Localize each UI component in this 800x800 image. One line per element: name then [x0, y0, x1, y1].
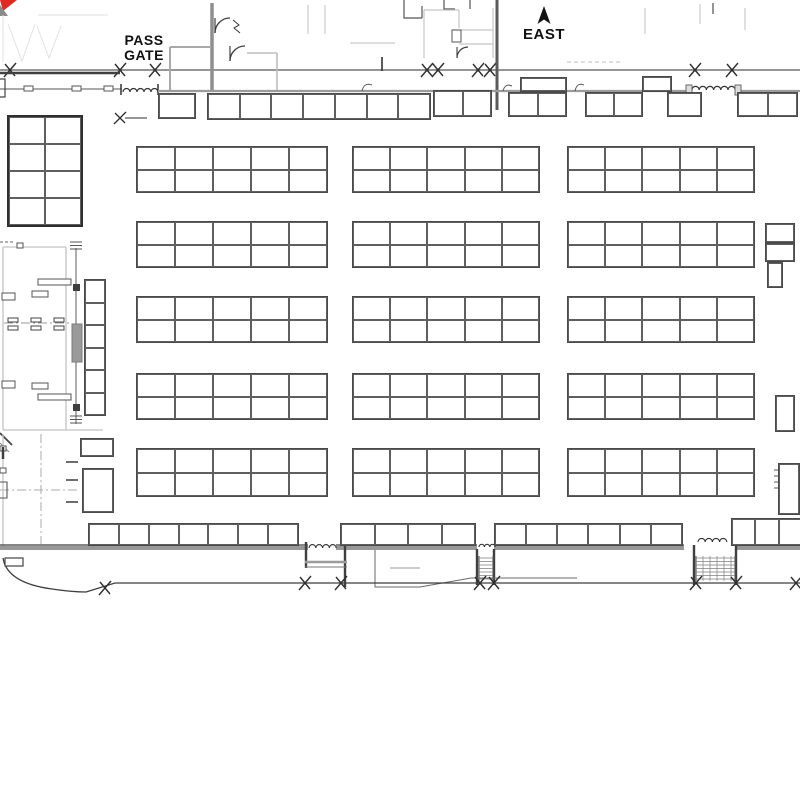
booth-cell: [137, 297, 175, 320]
booth-cell: [137, 320, 175, 343]
pass-gate-line1: PASS: [112, 33, 176, 48]
booth-cell: [390, 449, 427, 473]
booth-cell: [442, 524, 476, 545]
booth-cell: [465, 222, 502, 245]
booth-cell: [289, 449, 327, 473]
booth-cell: [717, 222, 754, 245]
booth-grid: [567, 373, 755, 420]
booth-grid: [80, 438, 114, 457]
booth-cell: [465, 147, 502, 170]
booth-grid: [352, 296, 540, 343]
booth-cell: [149, 524, 179, 545]
booth-cell: [465, 449, 502, 473]
booth-cell: [137, 170, 175, 193]
booth-cell: [586, 93, 614, 116]
booth-cell: [45, 171, 81, 198]
booth-cell: [367, 94, 399, 119]
booth-grid: [84, 279, 106, 416]
booth-cell: [434, 91, 463, 116]
booth-cell: [502, 245, 539, 268]
booth-grid: [642, 76, 672, 92]
booth-cell: [89, 524, 119, 545]
booth-cell: [251, 320, 289, 343]
booth-grid: [765, 223, 795, 243]
booth-cell: [526, 524, 557, 545]
booth-cell: [175, 473, 213, 497]
booth-grid: [352, 146, 540, 193]
booth-grid: [731, 518, 800, 546]
booth-cell: [240, 94, 272, 119]
booth-cell: [289, 297, 327, 320]
booth-cell: [605, 397, 642, 420]
booth-cell: [755, 519, 778, 545]
booth-grid: [765, 243, 795, 262]
booth-cell: [208, 94, 240, 119]
booth-cell: [680, 473, 717, 497]
booth-cell: [680, 374, 717, 397]
booth-grid: [352, 373, 540, 420]
booth-cell: [605, 473, 642, 497]
booth-grid: [567, 448, 755, 497]
booth-cell: [137, 374, 175, 397]
booth-cell: [717, 473, 754, 497]
booth-cell: [85, 348, 105, 371]
booth-cell: [502, 374, 539, 397]
booth-cell: [766, 244, 794, 261]
booth-cell: [238, 524, 268, 545]
booth-cell: [45, 144, 81, 171]
booth-grid: [494, 523, 683, 546]
booth-cell: [680, 147, 717, 170]
booth-cell: [251, 147, 289, 170]
booth-cell: [303, 94, 335, 119]
booth-grid: [567, 221, 755, 268]
booth-cell: [289, 374, 327, 397]
booth-cell: [119, 524, 149, 545]
booth-cell: [521, 78, 566, 91]
booth-cell: [502, 222, 539, 245]
booth-cell: [353, 222, 390, 245]
booth-cell: [766, 224, 794, 242]
booth-cell: [353, 320, 390, 343]
booth-cell: [398, 94, 430, 119]
booth-grid: [767, 262, 783, 288]
booth-cell: [45, 117, 81, 144]
booth-cell: [213, 245, 251, 268]
booth-cell: [251, 245, 289, 268]
booth-grid: [88, 523, 299, 546]
booth-cell: [605, 320, 642, 343]
booth-cell: [289, 147, 327, 170]
booth-cell: [538, 93, 567, 116]
booth-cell: [717, 397, 754, 420]
booth-cell: [509, 93, 538, 116]
booth-cell: [353, 449, 390, 473]
booth-cell: [85, 393, 105, 416]
booth-cell: [289, 170, 327, 193]
booth-cell: [465, 170, 502, 193]
booth-cell: [353, 473, 390, 497]
booth-cell: [465, 374, 502, 397]
booth-cell: [605, 147, 642, 170]
booth-cell: [353, 297, 390, 320]
booth-cell: [353, 147, 390, 170]
booth-cell: [390, 397, 427, 420]
booth-cell: [268, 524, 298, 545]
booth-grid: [520, 77, 567, 92]
booth-cell: [251, 374, 289, 397]
booth-cell: [427, 374, 464, 397]
booth-cell: [717, 245, 754, 268]
booth-cell: [427, 170, 464, 193]
booth-grid: [778, 463, 800, 515]
booth-cell: [353, 397, 390, 420]
booth-cell: [732, 519, 755, 545]
booth-cell: [717, 147, 754, 170]
booth-cell: [213, 170, 251, 193]
booth-cell: [568, 374, 605, 397]
booth-grid: [508, 92, 567, 117]
booth-grid: [667, 92, 702, 117]
booth-cell: [390, 147, 427, 170]
booth-cell: [9, 117, 45, 144]
booth-cell: [175, 147, 213, 170]
floor-plan: PASS GATE EAST: [0, 0, 800, 800]
booth-cell: [642, 170, 679, 193]
booth-cell: [463, 91, 492, 116]
booth-cell: [271, 94, 303, 119]
booth-cell: [45, 198, 81, 225]
booth-grid: [207, 93, 431, 120]
booth-cell: [502, 449, 539, 473]
booth-grid: [136, 373, 328, 420]
booth-cell: [680, 320, 717, 343]
booth-grid: [158, 93, 196, 119]
booth-cell: [502, 397, 539, 420]
booth-cell: [341, 524, 375, 545]
pass-gate-line2: GATE: [112, 48, 176, 63]
booth-grid: [433, 90, 492, 117]
booth-cell: [427, 222, 464, 245]
booth-grid: [340, 523, 476, 546]
booth-cell: [642, 374, 679, 397]
booth-cell: [465, 245, 502, 268]
booth-cell: [251, 222, 289, 245]
booth-cell: [175, 320, 213, 343]
booth-cell: [465, 397, 502, 420]
booth-cell: [680, 449, 717, 473]
booth-cell: [137, 222, 175, 245]
booth-cell: [175, 449, 213, 473]
booth-cell: [568, 449, 605, 473]
booth-cell: [390, 170, 427, 193]
booth-cell: [175, 170, 213, 193]
booth-cell: [588, 524, 619, 545]
booth-cell: [353, 245, 390, 268]
booth-cell: [605, 374, 642, 397]
booth-cell: [289, 397, 327, 420]
booth-cell: [680, 397, 717, 420]
booth-cell: [642, 245, 679, 268]
booth-cell: [85, 370, 105, 393]
compass-label: EAST: [522, 27, 566, 43]
booth-grid: [82, 468, 114, 513]
booth-cell: [502, 147, 539, 170]
booth-cell: [717, 374, 754, 397]
booth-cell: [390, 222, 427, 245]
booth-cell: [465, 473, 502, 497]
booth-cell: [175, 245, 213, 268]
booth-grid: [352, 221, 540, 268]
booth-cell: [768, 263, 782, 287]
booth-cell: [680, 222, 717, 245]
booth-cell: [605, 245, 642, 268]
booth-grid: [585, 92, 643, 117]
booth-grid: [352, 448, 540, 497]
booth-cell: [137, 473, 175, 497]
booth-cell: [251, 297, 289, 320]
booth-cell: [85, 303, 105, 326]
booth-cell: [427, 473, 464, 497]
booth-cell: [390, 297, 427, 320]
booth-cell: [668, 93, 701, 116]
booth-cell: [779, 519, 800, 545]
booth-grid: [775, 395, 795, 432]
booth-cell: [9, 144, 45, 171]
booth-cell: [289, 320, 327, 343]
booth-cell: [390, 245, 427, 268]
booth-cell: [81, 439, 113, 456]
booth-cell: [289, 245, 327, 268]
booth-cell: [680, 297, 717, 320]
booth-cell: [427, 449, 464, 473]
booth-cell: [642, 473, 679, 497]
booth-grid: [7, 115, 83, 227]
booth-cell: [137, 147, 175, 170]
booth-cell: [680, 245, 717, 268]
booth-cell: [137, 245, 175, 268]
booth-grid: [136, 448, 328, 497]
pass-gate-label: PASS GATE: [112, 33, 176, 62]
booth-cell: [568, 473, 605, 497]
booth-cell: [557, 524, 588, 545]
booth-cell: [568, 397, 605, 420]
booth-cell: [768, 93, 798, 116]
booth-cell: [213, 320, 251, 343]
booth-grid: [136, 146, 328, 193]
booth-cell: [779, 464, 799, 514]
booth-cell: [213, 222, 251, 245]
booth-cell: [651, 524, 682, 545]
booth-cell: [605, 297, 642, 320]
booth-cell: [175, 222, 213, 245]
booth-cell: [568, 222, 605, 245]
booth-cell: [776, 396, 794, 431]
booth-cell: [642, 449, 679, 473]
booth-cell: [568, 320, 605, 343]
booth-cell: [495, 524, 526, 545]
booth-cell: [642, 147, 679, 170]
booth-cell: [390, 320, 427, 343]
booth-cell: [605, 222, 642, 245]
booth-cell: [213, 374, 251, 397]
booth-layer: [0, 0, 800, 800]
booth-cell: [642, 297, 679, 320]
booth-cell: [465, 297, 502, 320]
booth-cell: [289, 222, 327, 245]
booth-cell: [9, 171, 45, 198]
booth-cell: [427, 245, 464, 268]
booth-cell: [175, 297, 213, 320]
booth-cell: [213, 147, 251, 170]
booth-cell: [175, 374, 213, 397]
booth-cell: [213, 449, 251, 473]
booth-cell: [717, 449, 754, 473]
booth-cell: [620, 524, 651, 545]
booth-cell: [251, 449, 289, 473]
booth-cell: [179, 524, 209, 545]
booth-cell: [213, 397, 251, 420]
booth-cell: [251, 473, 289, 497]
booth-cell: [502, 170, 539, 193]
booth-cell: [568, 297, 605, 320]
booth-cell: [390, 374, 427, 397]
booth-cell: [568, 170, 605, 193]
booth-cell: [717, 320, 754, 343]
booth-cell: [427, 147, 464, 170]
booth-cell: [85, 280, 105, 303]
booth-cell: [568, 147, 605, 170]
booth-cell: [137, 397, 175, 420]
booth-cell: [717, 170, 754, 193]
booth-cell: [502, 473, 539, 497]
booth-grid: [136, 221, 328, 268]
booth-cell: [408, 524, 442, 545]
booth-grid: [136, 296, 328, 343]
booth-cell: [208, 524, 238, 545]
booth-cell: [83, 469, 113, 512]
booth-cell: [289, 473, 327, 497]
booth-cell: [427, 320, 464, 343]
booth-grid: [567, 296, 755, 343]
booth-cell: [85, 325, 105, 348]
booth-cell: [605, 449, 642, 473]
booth-cell: [502, 297, 539, 320]
booth-cell: [9, 198, 45, 225]
booth-grid: [567, 146, 755, 193]
booth-cell: [375, 524, 409, 545]
booth-cell: [137, 449, 175, 473]
booth-cell: [175, 397, 213, 420]
booth-cell: [568, 245, 605, 268]
booth-cell: [427, 297, 464, 320]
booth-cell: [335, 94, 367, 119]
booth-cell: [353, 170, 390, 193]
booth-cell: [614, 93, 642, 116]
booth-cell: [680, 170, 717, 193]
booth-cell: [390, 473, 427, 497]
booth-cell: [213, 473, 251, 497]
booth-cell: [213, 297, 251, 320]
booth-cell: [738, 93, 768, 116]
booth-cell: [642, 320, 679, 343]
booth-cell: [465, 320, 502, 343]
booth-cell: [159, 94, 195, 118]
booth-cell: [251, 170, 289, 193]
booth-cell: [427, 397, 464, 420]
booth-cell: [643, 77, 671, 91]
booth-cell: [642, 397, 679, 420]
booth-grid: [737, 92, 798, 117]
booth-cell: [717, 297, 754, 320]
booth-cell: [353, 374, 390, 397]
booth-cell: [502, 320, 539, 343]
booth-cell: [642, 222, 679, 245]
booth-cell: [251, 397, 289, 420]
booth-cell: [605, 170, 642, 193]
